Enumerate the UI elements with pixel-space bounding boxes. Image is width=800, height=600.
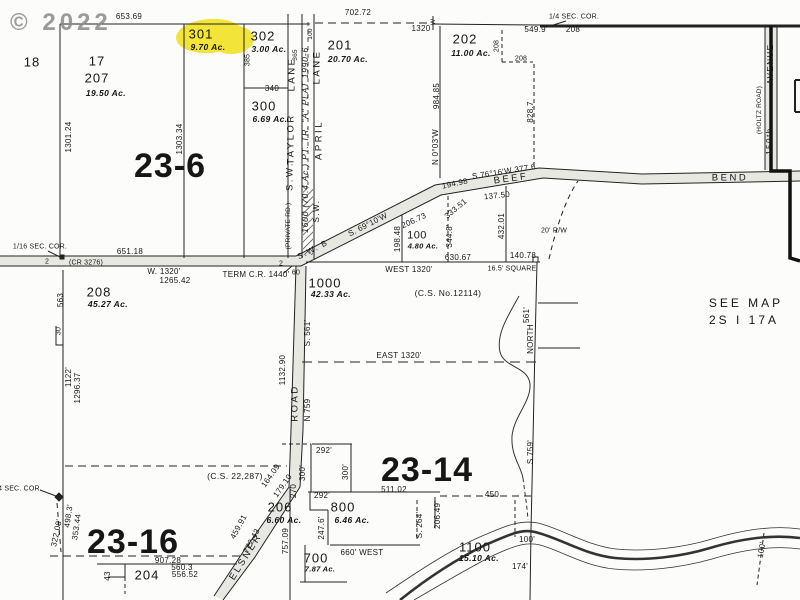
dim-100-lane: 100 bbox=[308, 28, 315, 39]
section-23-16: 23-16 bbox=[87, 525, 179, 559]
dim-984-85: 984.85 bbox=[433, 83, 441, 109]
copyright-watermark: © 2022 bbox=[10, 11, 112, 35]
lot-204: 204 bbox=[135, 569, 160, 582]
dim-450: 450 bbox=[485, 491, 499, 499]
dim-292-b: 292' bbox=[314, 492, 330, 500]
dim-653-69: 653.69 bbox=[116, 13, 142, 21]
dim-208-a: 208 bbox=[566, 26, 580, 34]
dim-30: 30 bbox=[56, 327, 63, 335]
dim-1122: 1122' bbox=[65, 367, 73, 387]
lot-301-acres: 9.70 Ac. bbox=[190, 43, 225, 52]
dim-333-51: 333.51 bbox=[443, 197, 468, 220]
road-bend: BEND bbox=[712, 173, 748, 183]
dim-300-a: 300' bbox=[299, 465, 307, 481]
dim-660-west: 660' WEST bbox=[341, 549, 384, 557]
dim-757-09: 757.09 bbox=[282, 528, 290, 554]
lot-100: 100 bbox=[407, 231, 427, 242]
dim-432-01: 432.01 bbox=[498, 213, 506, 239]
dim-w-1320: W. 1320' bbox=[147, 268, 180, 276]
road-beef: BEEF bbox=[493, 172, 529, 186]
dim-100-a: 100' bbox=[519, 536, 535, 544]
dim-term-cr: TERM C.R. 1440' bbox=[223, 271, 290, 279]
road-holtz: (HOLTZ ROAD) bbox=[757, 86, 764, 134]
cor-quarter-top: 1/4 SEC. COR. bbox=[549, 14, 599, 21]
dim-702-72: 702.72 bbox=[345, 9, 371, 17]
lot-206: 206 bbox=[268, 501, 293, 514]
note-see-map: SEE MAP bbox=[709, 297, 783, 309]
dim-1296-37: 1296.37 bbox=[74, 372, 82, 403]
dim-s-264: S. 264' bbox=[416, 512, 424, 539]
road-private: (PRIVATE RD.) bbox=[286, 203, 293, 250]
lot-17: 17 bbox=[89, 55, 105, 68]
lot-207: 207 bbox=[85, 72, 110, 85]
dim-20-rw: 20' R/W bbox=[541, 228, 567, 235]
road-cr-3276: (CR 3276) bbox=[69, 260, 103, 267]
dim-west-1320: WEST 1320' bbox=[385, 266, 433, 274]
lot-208-acres: 45.27 Ac. bbox=[88, 300, 128, 309]
lot-800-acres: 6.46 Ac. bbox=[334, 516, 369, 525]
dim-208-c: 208 bbox=[515, 56, 527, 63]
lot-800: 800 bbox=[331, 501, 356, 514]
road-lane-taylor: LANE bbox=[287, 57, 297, 92]
dim-651-18: 651.18 bbox=[117, 248, 143, 256]
road-sw-taylor: S.W. bbox=[285, 161, 295, 191]
dim-206-73: 206.73 bbox=[400, 212, 427, 230]
lot-206-acres: 6.60 Ac. bbox=[266, 516, 301, 525]
note-cs-22287: (C.S. 22,287) bbox=[207, 472, 263, 481]
cor-quarter-left: 4 SEC. COR. bbox=[0, 486, 42, 493]
lot-300-acres: 6.69 Ac. bbox=[252, 115, 287, 124]
dim-174: 174' bbox=[512, 563, 528, 571]
road-sw-b: S.W. B bbox=[296, 239, 329, 261]
lot-1000-acres: 42.33 Ac. bbox=[311, 290, 351, 299]
dim-1265-42: 1265.42 bbox=[159, 277, 190, 285]
lot-302: 302 bbox=[251, 30, 276, 43]
lot-1100: 1100 bbox=[459, 541, 491, 554]
dim-1132-90: 1132.90 bbox=[279, 355, 287, 385]
plat-map-canvas: 181720719.50 Ac.3019.70 Ac.3023.00 Ac.30… bbox=[0, 0, 800, 600]
dim-828-7: 828.7 bbox=[527, 101, 535, 123]
brg-n0-03w: N 0°03'W bbox=[432, 129, 440, 165]
lot-100-acres: 4.80 Ac. bbox=[408, 242, 438, 250]
lot-300: 300 bbox=[252, 100, 277, 113]
note-cs-12114: (C.S. No.12114) bbox=[415, 289, 482, 298]
road-avenue: AVENUE bbox=[767, 43, 775, 84]
lot-201-acres: 20.70 Ac. bbox=[328, 55, 368, 64]
dim-300-b: 300' bbox=[342, 464, 350, 480]
lot-18: 18 bbox=[24, 56, 40, 69]
dim-north: NORTH bbox=[527, 324, 535, 354]
dim-511-02: 511.02 bbox=[381, 486, 407, 494]
dim-270: 270 bbox=[290, 484, 298, 498]
brg-s69-10w: S. 69°10'W bbox=[347, 212, 389, 239]
dim-16-5-square: 16.5' SQUARE bbox=[488, 266, 537, 273]
lot-201: 201 bbox=[328, 39, 353, 52]
dim-s-561: S. 561' bbox=[304, 320, 312, 347]
dim-100-b: 100' bbox=[757, 541, 768, 558]
dim-340: 340 bbox=[265, 85, 279, 93]
dim-194-98: 194.98 bbox=[441, 177, 468, 190]
dim-s-759: S 759' bbox=[527, 440, 535, 464]
section-23-6: 23-6 bbox=[134, 149, 206, 183]
dim-563: 563 bbox=[57, 293, 65, 307]
dim-561: 561' bbox=[523, 307, 531, 323]
road-lane-april: LANE bbox=[312, 50, 322, 85]
cor-sixteenth: 1/16 SEC. COR. bbox=[13, 244, 67, 251]
lot-208: 208 bbox=[87, 286, 112, 299]
dim-137-50: 137.50 bbox=[484, 191, 511, 202]
dim-385: 385 bbox=[245, 54, 252, 66]
dim-322-08: 322.08' bbox=[50, 518, 64, 547]
dim-198-48: 198.48 bbox=[394, 226, 402, 252]
mark-2-a: 2 bbox=[45, 259, 49, 266]
dim-549-9: 549.9' bbox=[524, 26, 547, 34]
road-sw-april: S.W. bbox=[313, 200, 321, 223]
lot-700: 700 bbox=[304, 552, 329, 565]
lot-1100-acres: 15.10 Ac. bbox=[459, 554, 499, 563]
dim-247-6: 247.6' bbox=[318, 516, 326, 539]
plat-1600: 1600 (70.4 Ac.) PT. TR. "A" PLAT 1990-6 bbox=[301, 47, 310, 233]
section-23-14: 23-14 bbox=[381, 453, 473, 487]
lot-1000: 1000 bbox=[309, 277, 342, 290]
lot-207-acres: 19.50 Ac. bbox=[86, 89, 126, 98]
dim-208-b: 208 bbox=[494, 40, 501, 52]
lot-202: 202 bbox=[453, 33, 478, 46]
map-labels-layer: 181720719.50 Ac.3019.70 Ac.3023.00 Ac.30… bbox=[0, 0, 800, 600]
road-road: ROAD bbox=[290, 384, 300, 421]
dim-353-44: 353.44 bbox=[71, 513, 83, 540]
dim-556-52: 556.52 bbox=[172, 571, 198, 579]
mark-2-b: 2 bbox=[279, 261, 283, 268]
dim-60: 60 bbox=[292, 270, 300, 277]
road-taylor: TAYLOR bbox=[286, 113, 296, 165]
lot-202-acres: 11.00 Ac. bbox=[451, 49, 491, 58]
lot-301: 301 bbox=[189, 28, 214, 41]
road-april: APRIL bbox=[314, 120, 324, 160]
lot-302-acres: 3.00 Ac. bbox=[251, 45, 286, 54]
dim-344-8: 344.8' bbox=[446, 224, 454, 247]
note-see-map-ref: 2S I 17A bbox=[709, 314, 779, 326]
dim-292-a: 292' bbox=[316, 447, 332, 455]
dim-43: 43 bbox=[104, 571, 112, 581]
dim-east-1320: EAST 1320' bbox=[376, 352, 421, 360]
dim-1301-24: 1301.24 bbox=[65, 121, 73, 152]
road-150th: 150th bbox=[766, 127, 774, 155]
dim-1320-top: 1320 bbox=[412, 25, 431, 33]
dim-1303-34: 1303.34 bbox=[176, 123, 184, 154]
dim-140-78: 140.78 bbox=[510, 252, 536, 260]
dim-630-67: 630.67 bbox=[445, 254, 471, 262]
lot-700-acres: 7.87 Ac. bbox=[305, 565, 335, 573]
dim-n-759: N 759 bbox=[304, 399, 312, 422]
dim-206-49: 206.49' bbox=[434, 501, 442, 529]
dim-459-91: 459.91 bbox=[229, 514, 248, 541]
cor-w-mark: W bbox=[431, 19, 438, 25]
